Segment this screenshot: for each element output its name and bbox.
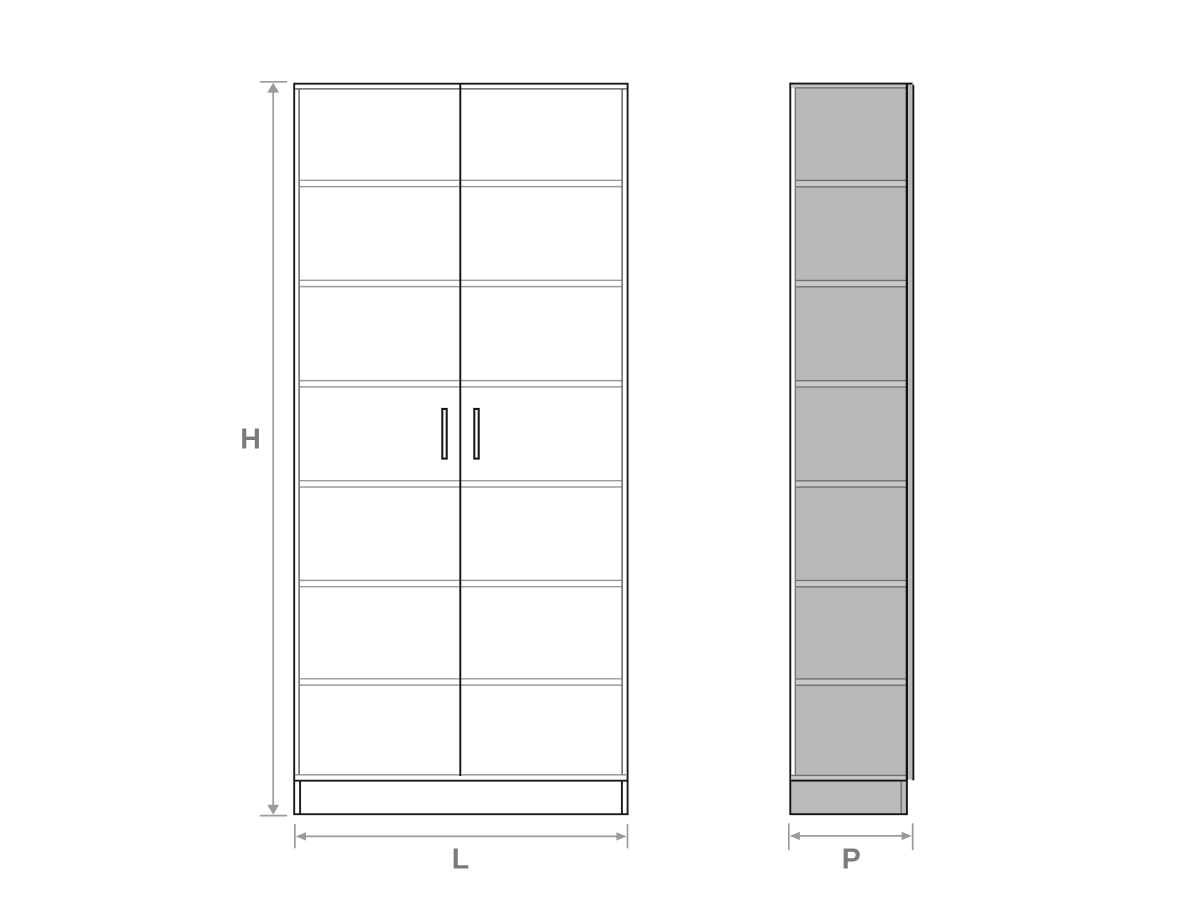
svg-text:P: P	[842, 843, 861, 875]
svg-text:H: H	[240, 424, 261, 456]
svg-text:L: L	[452, 843, 469, 875]
